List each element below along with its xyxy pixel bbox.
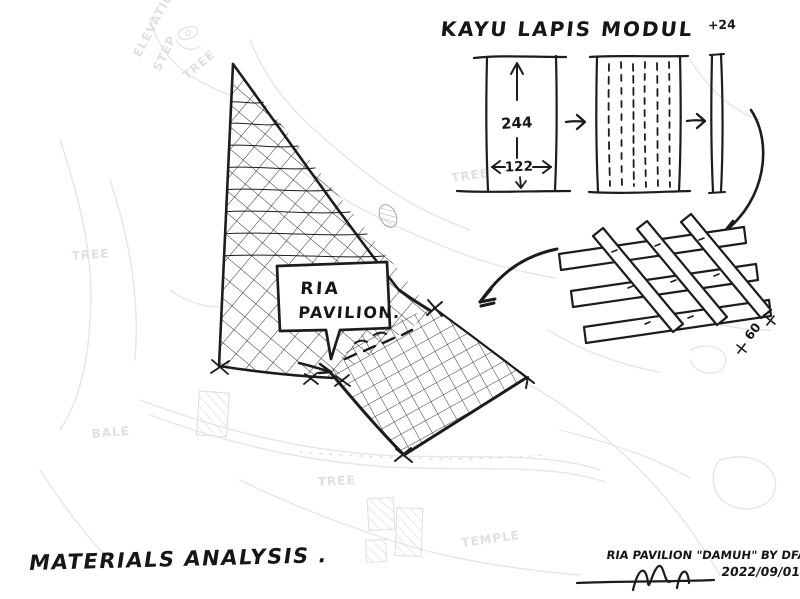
credit-line: RIA PAVILION "DAMUH" BY DFAP . xyxy=(606,548,800,562)
eye-doodle xyxy=(176,24,200,49)
bubble-text-line2: PAVILION. xyxy=(298,303,402,322)
height-dim-label: 244 xyxy=(501,113,533,133)
thickness-label: +24 xyxy=(708,17,737,33)
strip-panel xyxy=(709,54,725,193)
strip-length-annotation: 60 xyxy=(737,316,775,353)
curved-arrow-to-lattice-icon xyxy=(724,110,763,232)
step-arrow-1-icon xyxy=(566,115,585,129)
waffle-lattice-sketch: 60 xyxy=(480,214,775,353)
step-arrow-2-icon xyxy=(687,114,705,128)
strip-length-label: 60 xyxy=(741,320,764,343)
materials-analysis-sketch: ELEVATION STEP TREE TREE SITE AREA TREE … xyxy=(0,0,800,599)
faint-label-temple: TEMPLE xyxy=(460,528,520,550)
cut-lines-panel xyxy=(589,56,690,193)
signature-line xyxy=(577,580,714,583)
faint-label-step: STEP xyxy=(150,33,179,73)
curved-arrow-to-site-icon xyxy=(480,249,557,306)
faint-label-tree-1: TREE xyxy=(180,47,218,82)
faint-label-tree-4: TREE xyxy=(317,473,356,489)
signature-scribble xyxy=(633,566,689,590)
faint-label-tree-3: TREE xyxy=(450,166,489,185)
height-dimension: 244 xyxy=(501,63,533,158)
sheet-title: MATERIALS ANALYSIS . xyxy=(27,542,330,575)
plywood-module-diagram: KAYU LAPIS MODUL +24 244 122 xyxy=(439,17,763,232)
date-label: 2022/09/01 xyxy=(720,564,800,579)
module-title: KAYU LAPIS MODUL xyxy=(439,17,694,41)
faint-label-tree-2: TREE xyxy=(71,246,110,263)
faint-label-bale: BALE xyxy=(91,424,130,441)
bubble-text-line1: RIA xyxy=(300,279,341,299)
width-dimension: 122 xyxy=(492,159,551,188)
width-dim-label: 122 xyxy=(504,159,533,176)
